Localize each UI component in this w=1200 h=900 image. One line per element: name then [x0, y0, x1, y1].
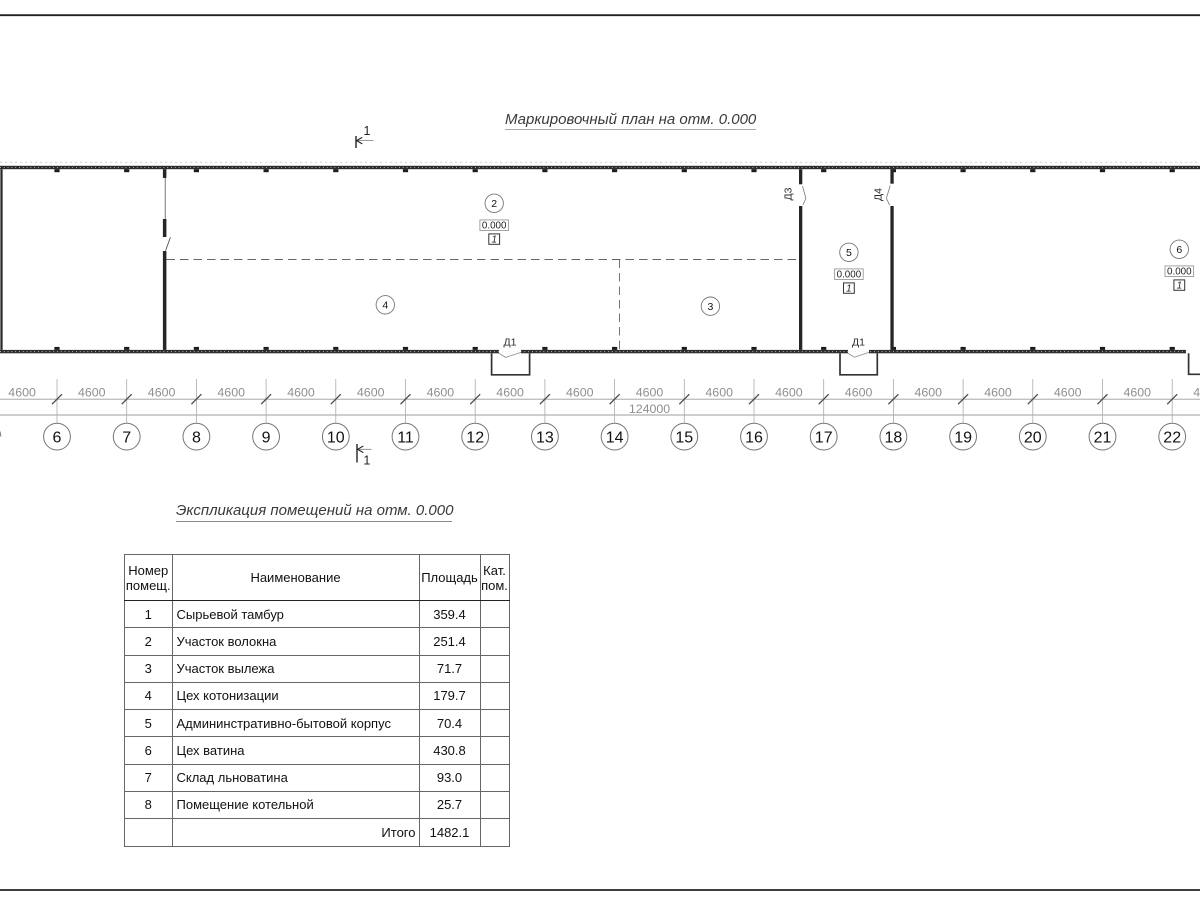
svg-text:Д1: Д1: [852, 337, 865, 349]
svg-text:4600: 4600: [984, 385, 1012, 399]
svg-text:4600: 4600: [1193, 385, 1200, 399]
svg-text:5: 5: [846, 247, 852, 259]
svg-text:1: 1: [363, 453, 370, 467]
svg-text:4600: 4600: [287, 385, 315, 399]
svg-text:4: 4: [382, 300, 388, 312]
svg-text:1: 1: [491, 234, 496, 245]
svg-text:19: 19: [954, 429, 972, 446]
svg-text:4600: 4600: [1124, 385, 1152, 399]
svg-text:22: 22: [1163, 429, 1181, 446]
svg-text:17: 17: [815, 429, 833, 446]
svg-text:Д1: Д1: [504, 337, 517, 349]
svg-text:9: 9: [262, 429, 271, 446]
svg-text:4600: 4600: [915, 385, 943, 399]
svg-text:4600: 4600: [1054, 385, 1082, 399]
svg-text:3: 3: [707, 301, 713, 313]
svg-text:4600: 4600: [78, 385, 106, 399]
svg-text:10: 10: [327, 429, 345, 446]
svg-text:4600: 4600: [636, 385, 664, 399]
svg-text:18: 18: [885, 429, 903, 446]
svg-text:4600: 4600: [496, 385, 524, 399]
svg-text:0.000: 0.000: [482, 220, 507, 231]
svg-text:14: 14: [606, 429, 624, 446]
svg-text:4600: 4600: [8, 385, 36, 399]
svg-text:Д3: Д3: [782, 187, 794, 200]
svg-text:4600: 4600: [148, 385, 176, 399]
svg-text:124000: 124000: [629, 402, 670, 416]
svg-text:1: 1: [364, 124, 371, 138]
svg-text:2: 2: [491, 198, 497, 210]
svg-text:0.000: 0.000: [1167, 266, 1192, 277]
svg-text:4600: 4600: [427, 385, 455, 399]
svg-text:1: 1: [846, 283, 851, 294]
svg-text:4600: 4600: [775, 385, 803, 399]
svg-text:Д4: Д4: [873, 188, 885, 201]
svg-text:7: 7: [122, 429, 131, 446]
svg-text:8: 8: [192, 429, 201, 446]
svg-text:13: 13: [536, 429, 554, 446]
svg-text:15: 15: [675, 429, 693, 446]
svg-text:20: 20: [1024, 429, 1042, 446]
svg-text:1: 1: [1177, 280, 1182, 291]
svg-text:4600: 4600: [705, 385, 733, 399]
svg-text:11: 11: [397, 429, 414, 446]
svg-text:6: 6: [1176, 244, 1182, 256]
svg-text:0.000: 0.000: [837, 269, 862, 280]
svg-text:4600: 4600: [357, 385, 385, 399]
svg-text:4600: 4600: [566, 385, 594, 399]
svg-text:16: 16: [745, 429, 763, 446]
svg-text:12: 12: [466, 429, 484, 446]
svg-text:4600: 4600: [217, 385, 245, 399]
svg-text:6: 6: [53, 429, 62, 446]
svg-text:21: 21: [1094, 429, 1112, 446]
svg-text:4600: 4600: [845, 385, 873, 399]
